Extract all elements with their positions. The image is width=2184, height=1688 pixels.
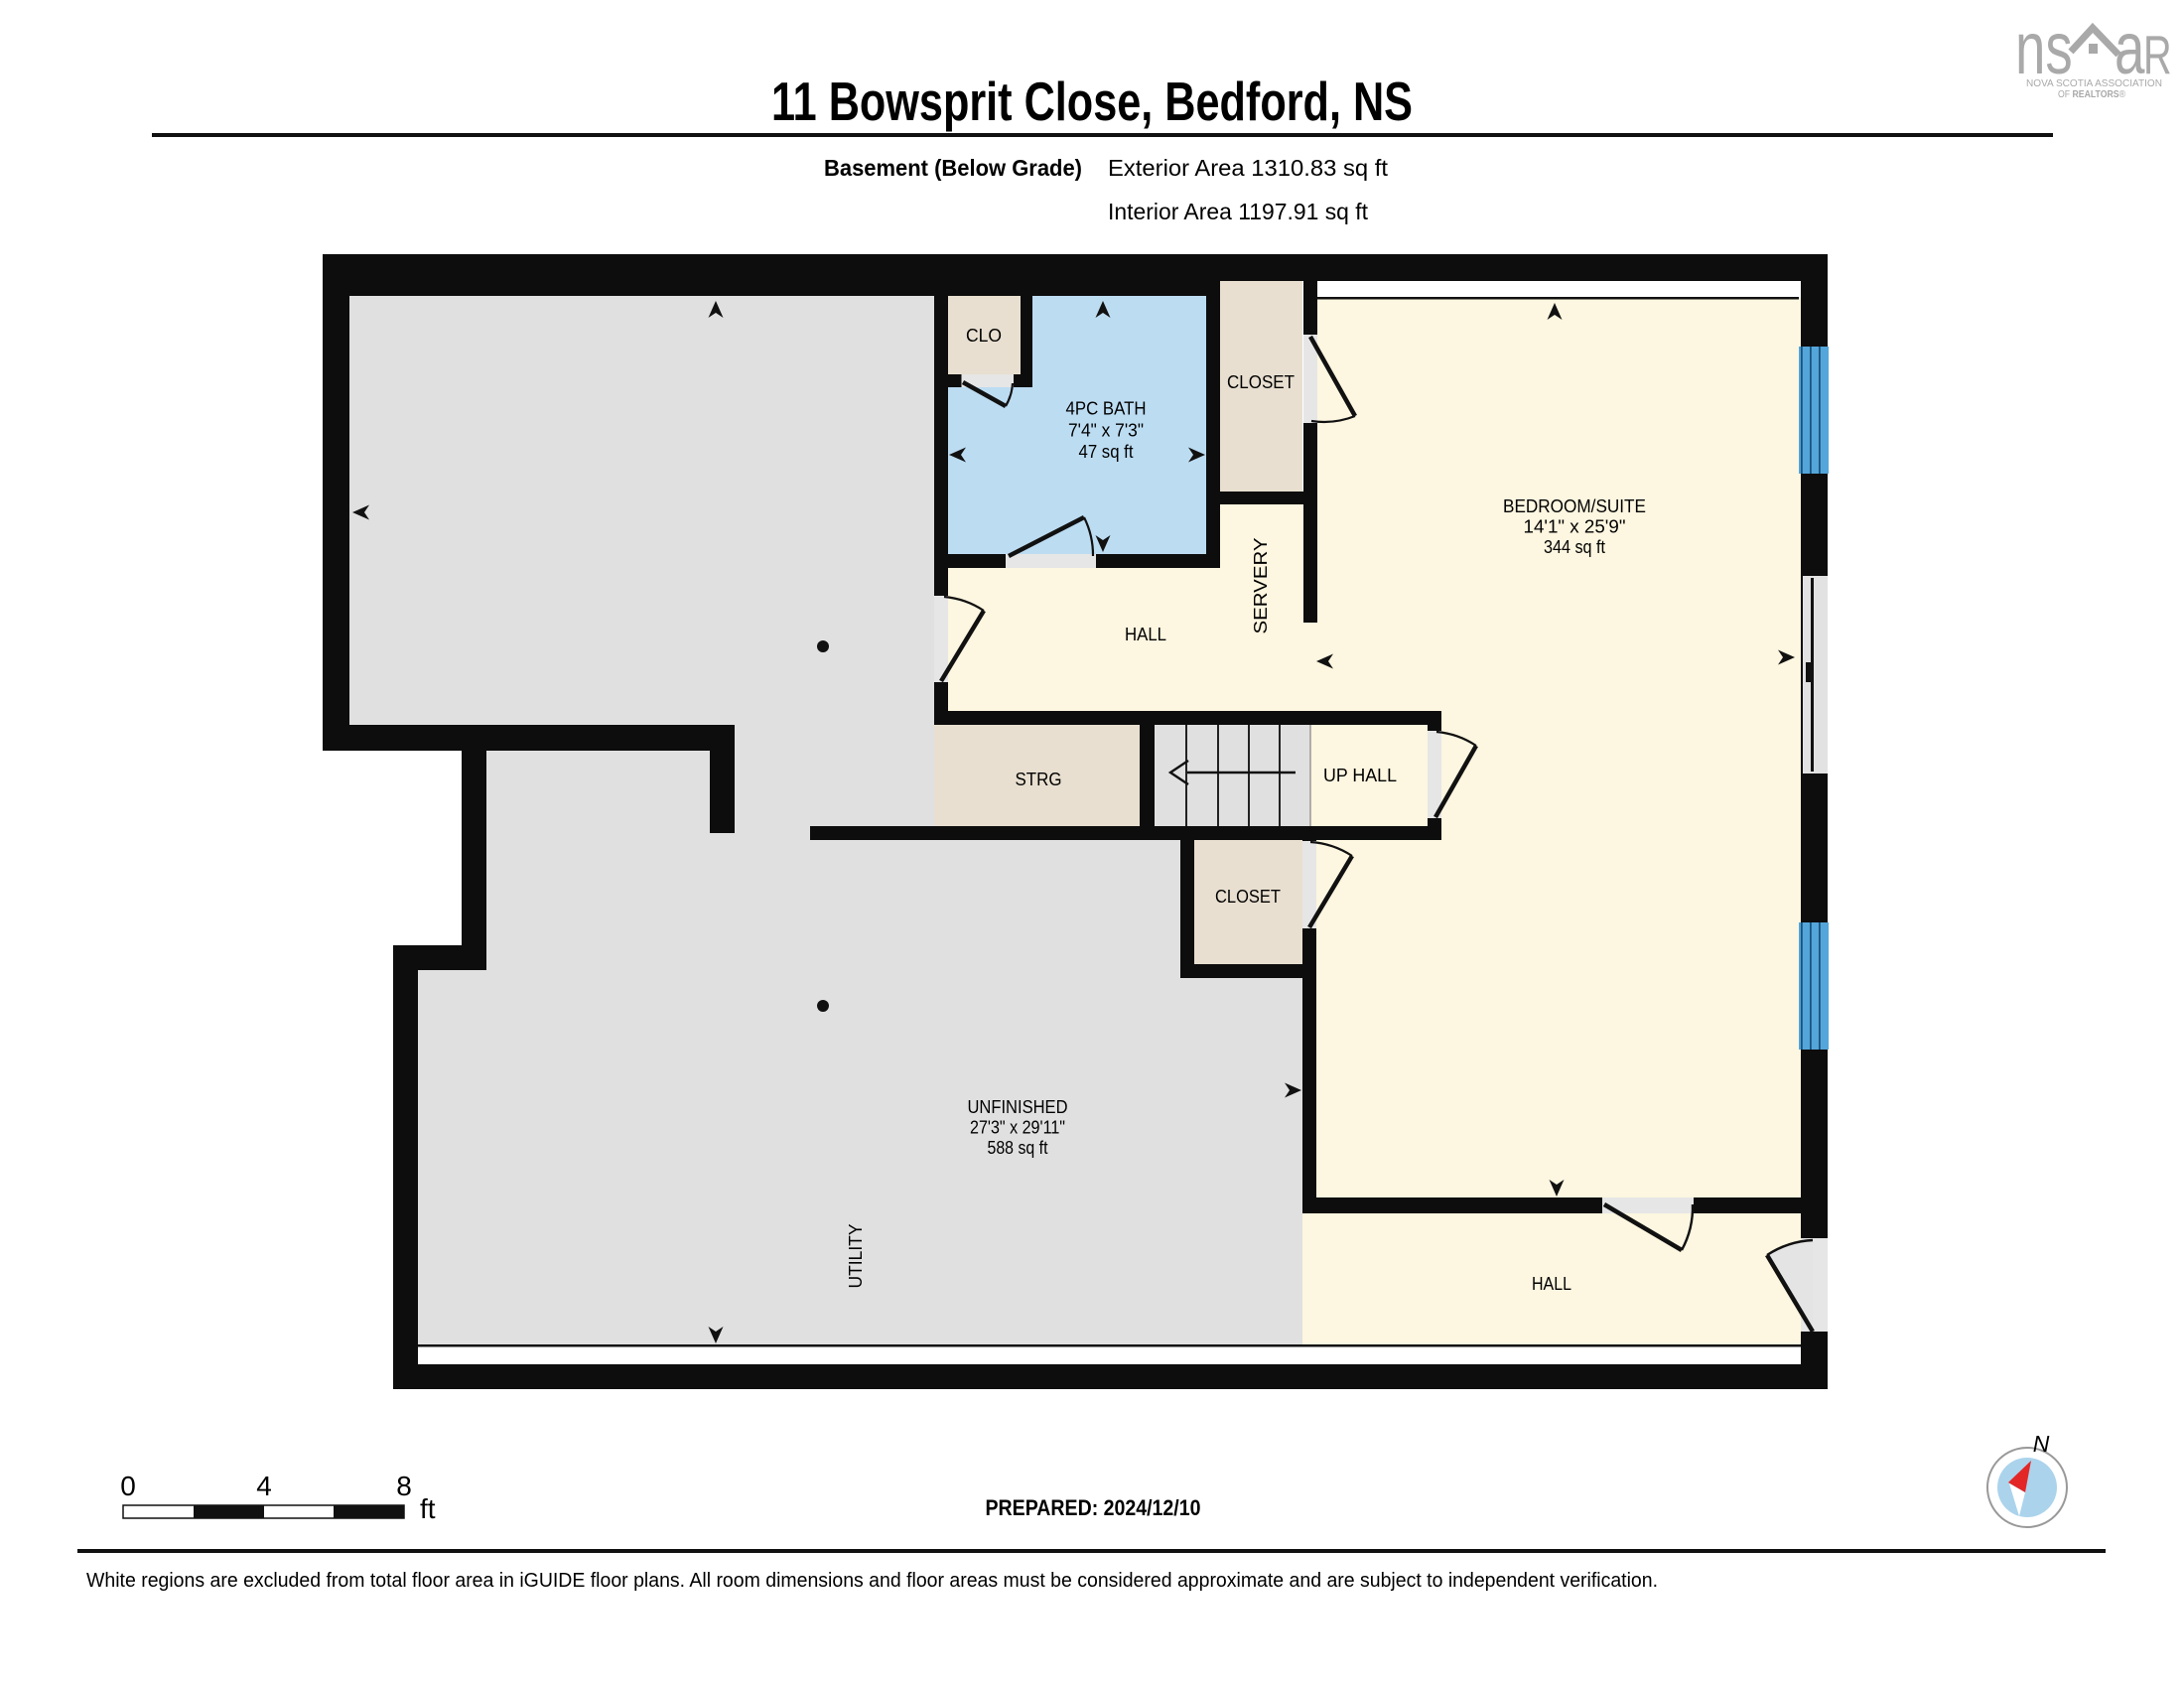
svg-text:HALL: HALL — [1532, 1273, 1571, 1294]
svg-text:4PC BATH: 4PC BATH — [1066, 398, 1147, 419]
svg-text:4: 4 — [256, 1471, 272, 1501]
svg-text:CLOSET: CLOSET — [1227, 371, 1295, 392]
svg-text:Basement (Below Grade): Basement (Below Grade) — [824, 155, 1082, 181]
svg-text:27'3" x 29'11": 27'3" x 29'11" — [970, 1117, 1065, 1138]
svg-text:7'4" x 7'3": 7'4" x 7'3" — [1068, 420, 1144, 441]
svg-text:588 sq ft: 588 sq ft — [988, 1137, 1048, 1158]
svg-text:HALL: HALL — [1125, 624, 1166, 644]
svg-text:BEDROOM/SUITE: BEDROOM/SUITE — [1503, 495, 1646, 516]
svg-text:CLO: CLO — [966, 325, 1002, 346]
svg-text:R: R — [2143, 26, 2172, 86]
svg-text:11 Bowsprit Close, Bedford, NS: 11 Bowsprit Close, Bedford, NS — [771, 70, 1413, 132]
svg-text:Exterior Area 1310.83 sq ft: Exterior Area 1310.83 sq ft — [1108, 155, 1389, 181]
svg-text:PREPARED: 2024/12/10: PREPARED: 2024/12/10 — [986, 1495, 1201, 1520]
svg-text:344 sq ft: 344 sq ft — [1544, 536, 1605, 557]
svg-text:UTILITY: UTILITY — [845, 1224, 866, 1289]
svg-text:UNFINISHED: UNFINISHED — [968, 1096, 1068, 1117]
svg-text:14'1" x 25'9": 14'1" x 25'9" — [1524, 516, 1626, 537]
svg-text:UP HALL: UP HALL — [1323, 765, 1397, 785]
svg-text:0: 0 — [120, 1471, 136, 1501]
svg-text:SERVERY: SERVERY — [1250, 538, 1271, 634]
svg-text:a: a — [2115, 7, 2145, 89]
svg-text:CLOSET: CLOSET — [1215, 886, 1281, 907]
svg-text:ft: ft — [420, 1493, 436, 1524]
svg-text:ns: ns — [2015, 7, 2073, 89]
svg-text:White regions are excluded fro: White regions are excluded from total fl… — [86, 1570, 1658, 1592]
svg-text:Interior Area 1197.91 sq ft: Interior Area 1197.91 sq ft — [1108, 199, 1369, 224]
svg-text:8: 8 — [396, 1471, 412, 1501]
svg-text:NOVA SCOTIA ASSOCIATION: NOVA SCOTIA ASSOCIATION — [2026, 78, 2162, 89]
svg-text:STRG: STRG — [1016, 769, 1062, 789]
svg-text:OF REALTORS®: OF REALTORS® — [2058, 89, 2126, 100]
svg-text:N: N — [2033, 1431, 2050, 1457]
svg-text:47 sq ft: 47 sq ft — [1079, 441, 1134, 462]
